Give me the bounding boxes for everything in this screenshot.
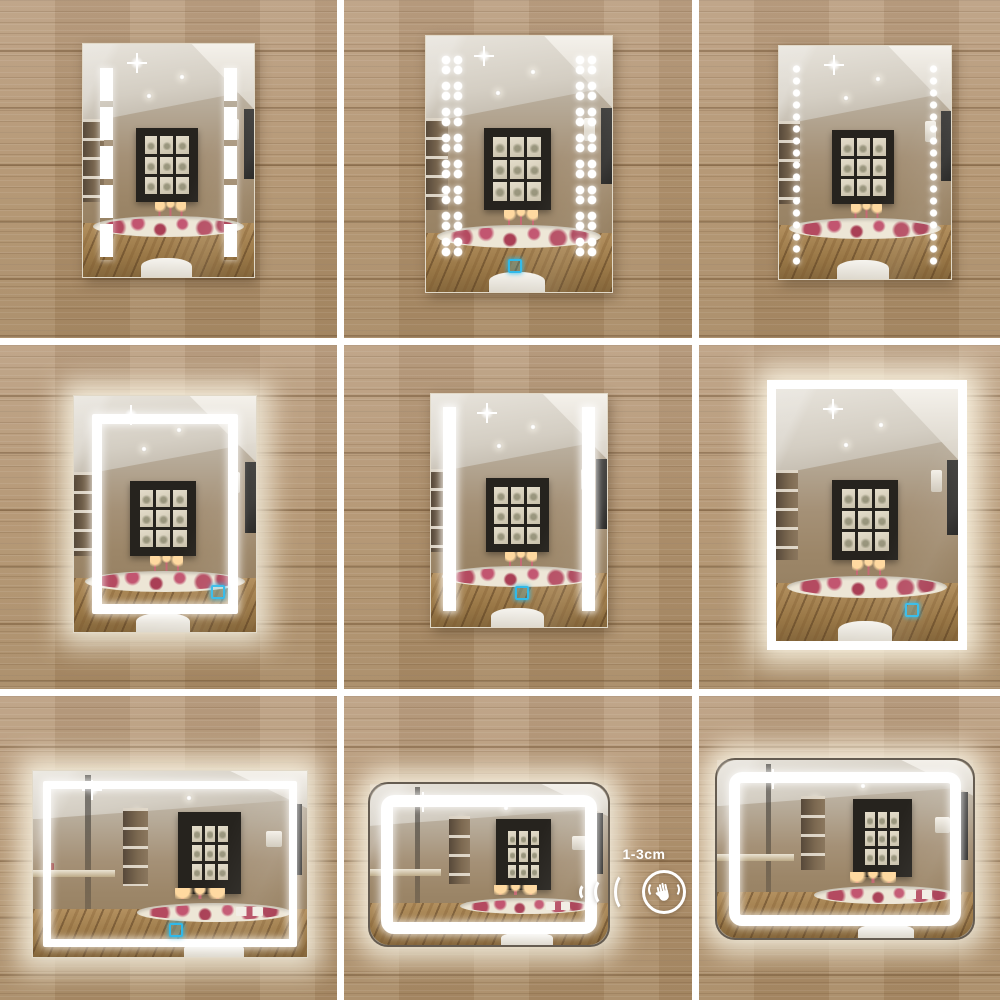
mirror-glass <box>779 46 951 279</box>
led-dot-columns-left <box>440 54 464 262</box>
product-photo-cell-1 <box>0 0 337 338</box>
towel <box>838 621 893 641</box>
touch-sensor-icon[interactable] <box>905 603 919 617</box>
towel <box>491 608 544 627</box>
touch-sensor-icon[interactable] <box>508 259 522 273</box>
mirror-dot-clusters <box>425 35 613 293</box>
mirror-inset-led-frame-landscape <box>32 770 308 958</box>
led-strip-right <box>224 68 237 260</box>
product-photo-cell-9 <box>699 696 1000 1000</box>
product-photo-cell-4 <box>0 345 337 689</box>
led-strip-right <box>582 407 595 611</box>
framed-botanical-art <box>136 128 198 203</box>
sparkle-highlight-icon <box>477 403 497 423</box>
downlight-icon <box>878 422 884 428</box>
candles <box>852 560 885 575</box>
mirror-inset-led-frame <box>73 395 257 633</box>
sparkle-highlight-icon <box>823 399 843 419</box>
framed-botanical-art <box>484 128 551 210</box>
dark-wall-panel <box>245 462 256 533</box>
mirror-segmented-strips <box>82 43 255 278</box>
mirror-dot-columns <box>778 45 952 280</box>
led-frame <box>92 414 238 614</box>
touch-sensor-icon[interactable] <box>515 586 529 600</box>
led-dot-column-left <box>792 63 801 265</box>
product-photo-cell-8: 1-3cm <box>344 696 692 1000</box>
dark-wall-panel <box>601 108 612 185</box>
towel <box>501 932 553 945</box>
led-dot-column-right <box>929 63 938 265</box>
mirror-rounded-led-frame <box>368 782 610 947</box>
product-photo-cell-5 <box>344 345 692 689</box>
led-strip-left <box>443 407 456 611</box>
dark-wall-panel <box>941 111 951 181</box>
mirror-edge-lit-frame <box>767 380 967 650</box>
sensor-distance-label: 1-3cm <box>602 846 686 862</box>
product-photo-cell-3 <box>699 0 1000 338</box>
mirror-glass <box>776 389 958 641</box>
led-dot-columns-right <box>574 54 598 262</box>
product-photo-cell-2 <box>344 0 692 338</box>
sparkle-highlight-icon <box>127 53 147 73</box>
distance-sensor-annotation: 1-3cm <box>602 846 686 914</box>
wall-sconce <box>931 470 942 493</box>
mirror-solid-strips <box>430 393 608 628</box>
mirror-product-collage: 1-3cm <box>0 0 1000 1000</box>
downlight-icon <box>496 443 502 449</box>
candles <box>505 552 537 566</box>
led-strip-left <box>100 68 113 260</box>
touch-sensor-icon[interactable] <box>169 923 183 937</box>
hand-wave-sensor-icon <box>642 870 686 914</box>
framed-botanical-art <box>832 130 894 205</box>
candles <box>155 202 186 216</box>
reflection-scene <box>779 46 951 279</box>
candles <box>851 204 882 218</box>
wall-shelves <box>776 470 798 561</box>
reflection-scene <box>776 389 958 641</box>
candles <box>504 210 537 225</box>
sparkle-highlight-icon <box>824 55 844 75</box>
framed-botanical-art <box>832 480 898 561</box>
bathtub-with-petals <box>787 576 947 599</box>
downlight-icon <box>495 90 501 96</box>
towel <box>489 272 545 292</box>
mirror-rounded-led-frame <box>715 758 975 940</box>
dark-wall-panel <box>947 460 958 536</box>
towel <box>837 260 889 279</box>
sparkle-highlight-icon <box>474 46 494 66</box>
led-frame <box>729 772 961 926</box>
sensor-waves-icon <box>579 872 639 912</box>
towel <box>136 613 191 632</box>
framed-botanical-art <box>486 478 549 553</box>
dark-wall-panel <box>244 109 254 179</box>
towel <box>141 258 192 277</box>
led-frame <box>381 795 597 934</box>
dark-wall-panel <box>596 459 607 529</box>
product-photo-cell-6 <box>699 345 1000 689</box>
product-photo-cell-7 <box>0 696 337 1000</box>
downlight-icon <box>843 95 849 101</box>
downlight-icon <box>530 424 536 430</box>
hand-icon <box>652 879 675 905</box>
touch-sensor-icon[interactable] <box>211 585 225 599</box>
